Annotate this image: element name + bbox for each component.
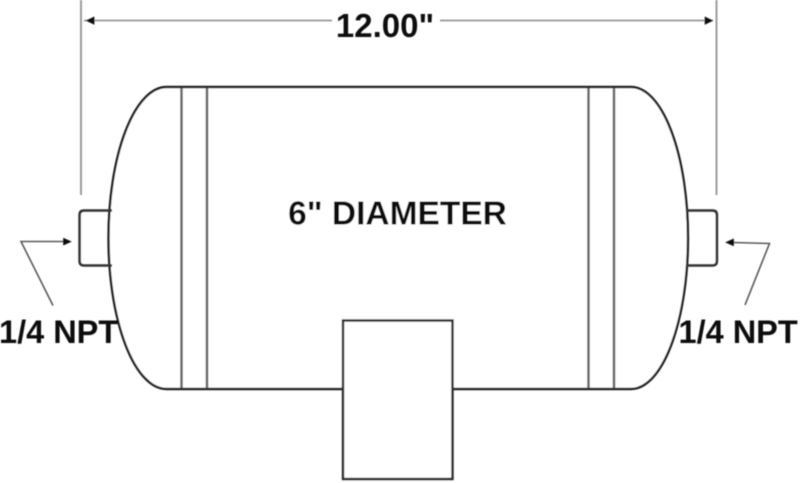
svg-text:6" DIAMETER: 6" DIAMETER [288, 196, 507, 233]
svg-text:12.00": 12.00" [336, 7, 434, 44]
svg-text:1/4 NPT: 1/4 NPT [0, 314, 118, 350]
svg-text:1/4 NPT: 1/4 NPT [679, 314, 798, 350]
